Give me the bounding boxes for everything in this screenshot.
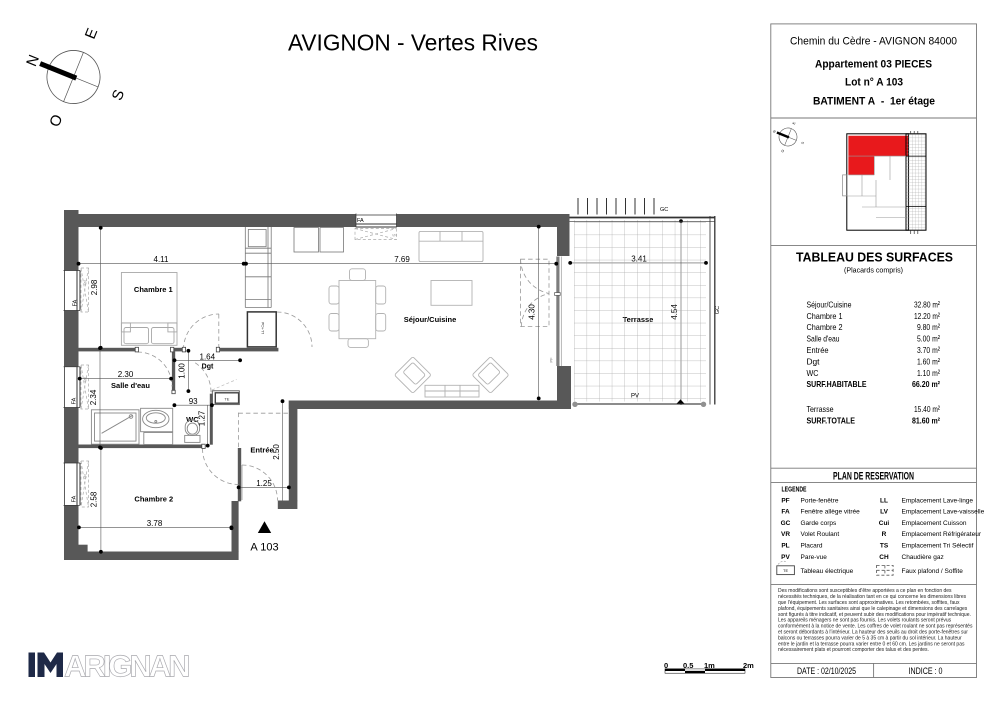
svg-text:Dgt: Dgt [202,363,214,370]
svg-text:1.10 m²: 1.10 m² [917,368,940,378]
svg-text:Emplacement Cuisson: Emplacement Cuisson [902,520,967,527]
svg-text:FA: FA [72,397,78,404]
svg-text:Séjour/Cuisine: Séjour/Cuisine [404,315,457,324]
svg-text:Entrée: Entrée [250,446,273,455]
svg-text:Volet Roulant: Volet Roulant [801,531,840,538]
svg-text:32.80 m²: 32.80 m² [914,299,940,309]
svg-text:ARIGNAN: ARIGNAN [64,649,191,684]
svg-text:Emplacement Lave-vaisselle: Emplacement Lave-vaisselle [902,509,985,516]
svg-text:A 103: A 103 [250,542,278,554]
svg-text:Placard: Placard [801,543,823,550]
svg-text:VR: VR [83,280,87,285]
svg-text:2.30: 2.30 [118,370,134,379]
svg-text:PL: PL [781,543,789,550]
svg-text:Chambre 1: Chambre 1 [807,311,843,321]
svg-text:LL: LL [880,497,888,504]
svg-text:SURF.HABITABLE: SURF.HABITABLE [807,379,867,389]
svg-text:LV: LV [880,509,888,516]
svg-text:4.11: 4.11 [154,255,170,264]
svg-text:Appartement 03 PIECES: Appartement 03 PIECES [815,58,932,70]
svg-text:(Placards compris): (Placards compris) [844,268,903,275]
svg-text:VR: VR [781,531,790,538]
svg-text:Séjour/Cuisine: Séjour/Cuisine [807,299,852,309]
svg-text:Garde corps: Garde corps [801,520,838,527]
svg-text:Cui: Cui [879,520,890,527]
svg-text:LEGENDE: LEGENDE [782,484,807,493]
svg-text:Tableau électrique: Tableau électrique [801,568,854,575]
svg-text:Chambre 2: Chambre 2 [807,322,843,332]
svg-text:1.60 m²: 1.60 m² [917,356,940,366]
svg-text:Salle d'eau: Salle d'eau [807,334,840,344]
svg-text:12.20 m²: 12.20 m² [914,311,940,321]
svg-text:TABLEAU DES SURFACES: TABLEAU DES SURFACES [796,251,953,265]
svg-text:nécessairement plats et pourro: nécessairement plats et pourront comport… [778,647,929,653]
svg-text:PV: PV [631,394,639,400]
svg-text:VR: VR [83,377,87,382]
svg-text:Chaudière gaz: Chaudière gaz [902,554,944,561]
svg-text:Terrasse: Terrasse [807,404,834,414]
svg-text:TE: TE [783,569,788,573]
svg-text:AVIGNON - Vertes Rives: AVIGNON - Vertes Rives [288,30,538,56]
svg-text:2.98: 2.98 [90,279,99,295]
svg-text:66.20 m²: 66.20 m² [912,379,940,389]
svg-text:Faux plafond / Soffite: Faux plafond / Soffite [902,568,964,575]
svg-text:VR: VR [392,234,397,238]
svg-text:BATIMENT A - 1er étage: BATIMENT A - 1er étage [813,96,935,108]
svg-text:Chambre 1: Chambre 1 [134,285,173,294]
svg-text:GC: GC [715,306,721,314]
svg-text:1.27: 1.27 [198,410,207,426]
svg-text:Salle d'eau: Salle d'eau [111,381,150,390]
svg-text:LL+Cui: LL+Cui [261,322,265,334]
svg-text:2.50: 2.50 [272,444,281,460]
svg-text:93: 93 [189,397,198,406]
svg-text:81.60 m²: 81.60 m² [912,415,940,425]
svg-text:2.58: 2.58 [90,491,99,507]
svg-text:1.64: 1.64 [200,352,216,361]
svg-text:FA: FA [73,299,79,306]
svg-text:9.80 m²: 9.80 m² [917,322,940,332]
svg-text:R: R [882,531,887,538]
svg-text:Emplacement Lave-linge: Emplacement Lave-linge [902,497,974,504]
svg-text:PF: PF [549,357,554,363]
svg-text:WC: WC [807,368,819,378]
svg-text:3.78: 3.78 [147,519,163,528]
svg-text:Emplacement Tri Sélectif: Emplacement Tri Sélectif [902,543,974,550]
svg-text:5.00 m²: 5.00 m² [917,334,940,344]
svg-text:FA: FA [357,218,364,224]
svg-text:4.30: 4.30 [528,304,537,320]
svg-text:1.00: 1.00 [177,363,186,379]
svg-text:PV: PV [781,554,790,561]
svg-text:VR: VR [83,474,87,479]
svg-text:TE: TE [224,396,229,401]
svg-text:Chambre 2: Chambre 2 [134,495,173,504]
svg-text:3.70 m²: 3.70 m² [917,345,940,355]
svg-text:TS: TS [880,543,889,550]
svg-text:Dgt: Dgt [807,356,821,366]
svg-text:CH: CH [879,554,889,561]
svg-text:Pare-vue: Pare-vue [801,554,828,561]
svg-text:7.69: 7.69 [394,255,410,264]
svg-text:Lot n° A 103: Lot n° A 103 [845,76,903,88]
svg-text:SURF.TOTALE: SURF.TOTALE [807,415,856,425]
svg-text:1.25: 1.25 [256,479,272,488]
svg-text:FA: FA [781,509,790,516]
svg-text:Entrée: Entrée [807,345,829,355]
svg-text:Chemin du Cèdre - AVIGNON 8400: Chemin du Cèdre - AVIGNON 84000 [790,36,957,48]
svg-text:Fenêtre allège vitrée: Fenêtre allège vitrée [801,509,861,516]
svg-text:FA: FA [72,495,78,502]
svg-text:GC: GC [781,520,791,527]
svg-text:Emplacement Réfrigérateur: Emplacement Réfrigérateur [902,531,982,538]
svg-text:DATE : 02/10/2025: DATE : 02/10/2025 [797,666,856,677]
svg-text:2.34: 2.34 [89,389,98,405]
svg-text:PF: PF [781,497,789,504]
svg-text:15.40 m²: 15.40 m² [914,404,940,414]
svg-text:Porte-fenêtre: Porte-fenêtre [801,497,839,504]
svg-text:INDICE : 0: INDICE : 0 [909,666,943,677]
svg-text:PLAN DE RESERVATION: PLAN DE RESERVATION [833,471,914,483]
svg-text:GC: GC [660,207,668,213]
